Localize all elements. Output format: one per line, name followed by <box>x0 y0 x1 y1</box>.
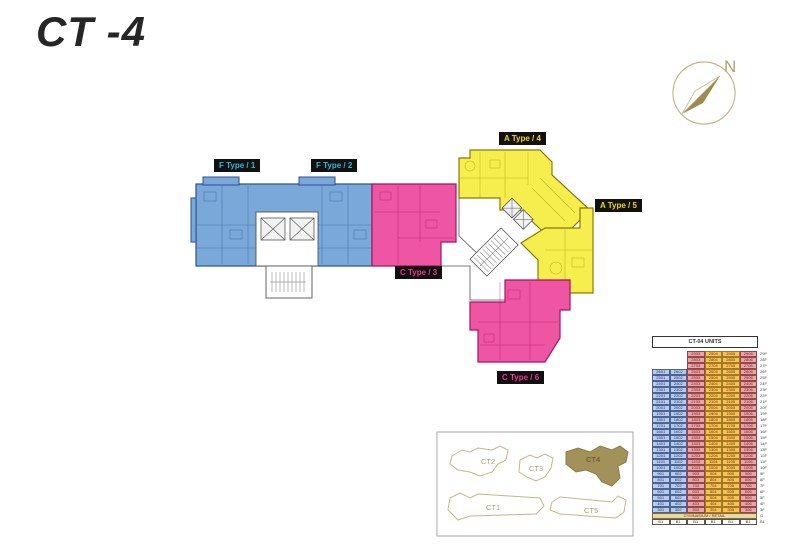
units-table: CT-04 UNITS 290329042905290629F280328042… <box>652 336 782 525</box>
label-f-type-2: F Type / 2 <box>311 159 357 172</box>
unit-cell: B1 <box>687 519 705 525</box>
compass-rose: N <box>673 57 736 124</box>
wing-f-type <box>191 177 372 298</box>
unit-cell: B1 <box>705 519 723 525</box>
floor-label: B1 <box>760 519 765 525</box>
unit-c-type-3 <box>372 184 456 266</box>
label-a-type-5: A Type / 5 <box>595 199 642 212</box>
units-table-title: CT-04 UNITS <box>652 336 758 348</box>
label-a-type-4: A Type / 4 <box>499 132 546 145</box>
f-wing-core <box>256 212 318 298</box>
units-table-body: 290329042905290629F280328042805280628F27… <box>652 351 782 525</box>
key-plan-ct3-label: CT3 <box>529 464 543 473</box>
key-plan: CT2 CT3 CT4 CT1 CT5 <box>437 432 633 536</box>
unit-cell: B1 <box>722 519 740 525</box>
unit-cell: B1 <box>740 519 758 525</box>
compass-north-label: N <box>724 57 736 76</box>
unit-cell: B1 <box>670 519 688 525</box>
key-plan-ct5-label: CT5 <box>584 506 598 515</box>
compass-needle-light <box>682 76 720 114</box>
table-row: B1B1B1B1B1B1B1 <box>652 519 782 525</box>
label-f-type-1: F Type / 1 <box>214 159 260 172</box>
label-c-type-6: C Type / 6 <box>497 371 544 384</box>
drawing-sheet: CT -4 N <box>0 0 800 550</box>
label-c-type-3: C Type / 3 <box>395 266 442 279</box>
unit-c-type-6 <box>470 280 570 362</box>
key-plan-ct1-label: CT1 <box>486 503 500 512</box>
unit-cell: B1 <box>652 519 670 525</box>
key-plan-ct4-label: CT4 <box>586 455 601 464</box>
key-plan-ct2-label: CT2 <box>481 457 495 466</box>
